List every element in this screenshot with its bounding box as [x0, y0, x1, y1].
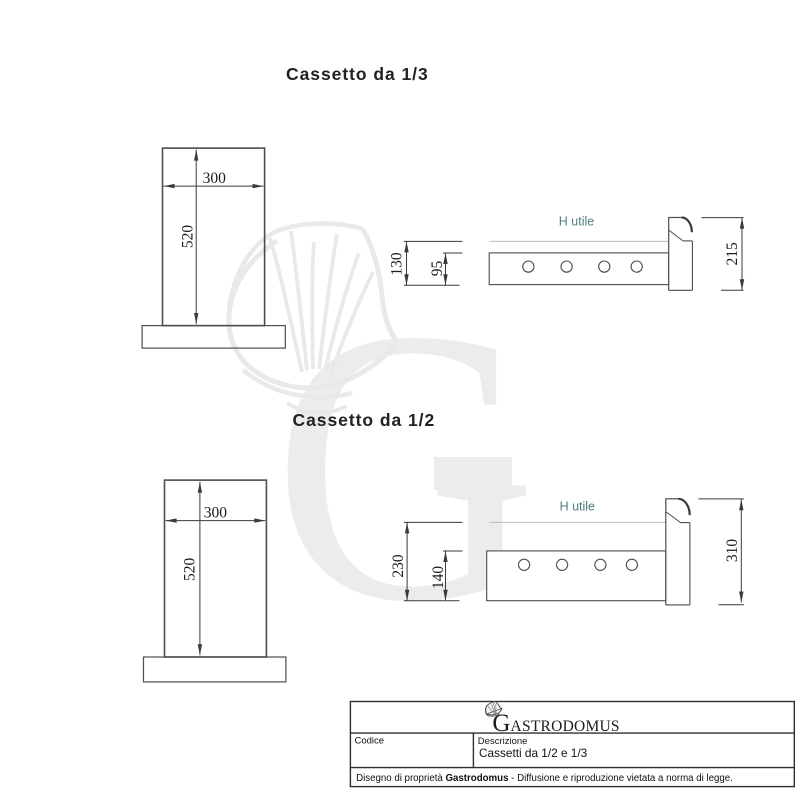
svg-text:520: 520	[182, 558, 199, 582]
svg-text:300: 300	[204, 505, 228, 522]
svg-text:Codice: Codice	[355, 736, 385, 747]
svg-text:140: 140	[430, 566, 447, 590]
svg-text:95: 95	[429, 261, 446, 277]
svg-text:Cassetto da 1/3: Cassetto da 1/3	[286, 64, 429, 84]
svg-text:Cassetto da 1/2: Cassetto da 1/2	[293, 410, 436, 430]
svg-text:130: 130	[388, 252, 405, 276]
svg-text:310: 310	[724, 539, 741, 563]
svg-text:ASTRODOMUS: ASTRODOMUS	[511, 718, 620, 735]
svg-text:G: G	[492, 710, 510, 737]
svg-text:H utile: H utile	[559, 215, 594, 229]
svg-text:300: 300	[203, 170, 227, 187]
svg-text:H utile: H utile	[560, 500, 595, 514]
svg-text:230: 230	[390, 554, 407, 578]
svg-text:Disegno di proprietà Gastrodom: Disegno di proprietà Gastrodomus - Diffu…	[356, 773, 733, 784]
svg-text:520: 520	[179, 225, 196, 249]
svg-text:Cassetti da 1/2 e 1/3: Cassetti da 1/2 e 1/3	[479, 746, 588, 760]
svg-text:215: 215	[724, 242, 741, 266]
